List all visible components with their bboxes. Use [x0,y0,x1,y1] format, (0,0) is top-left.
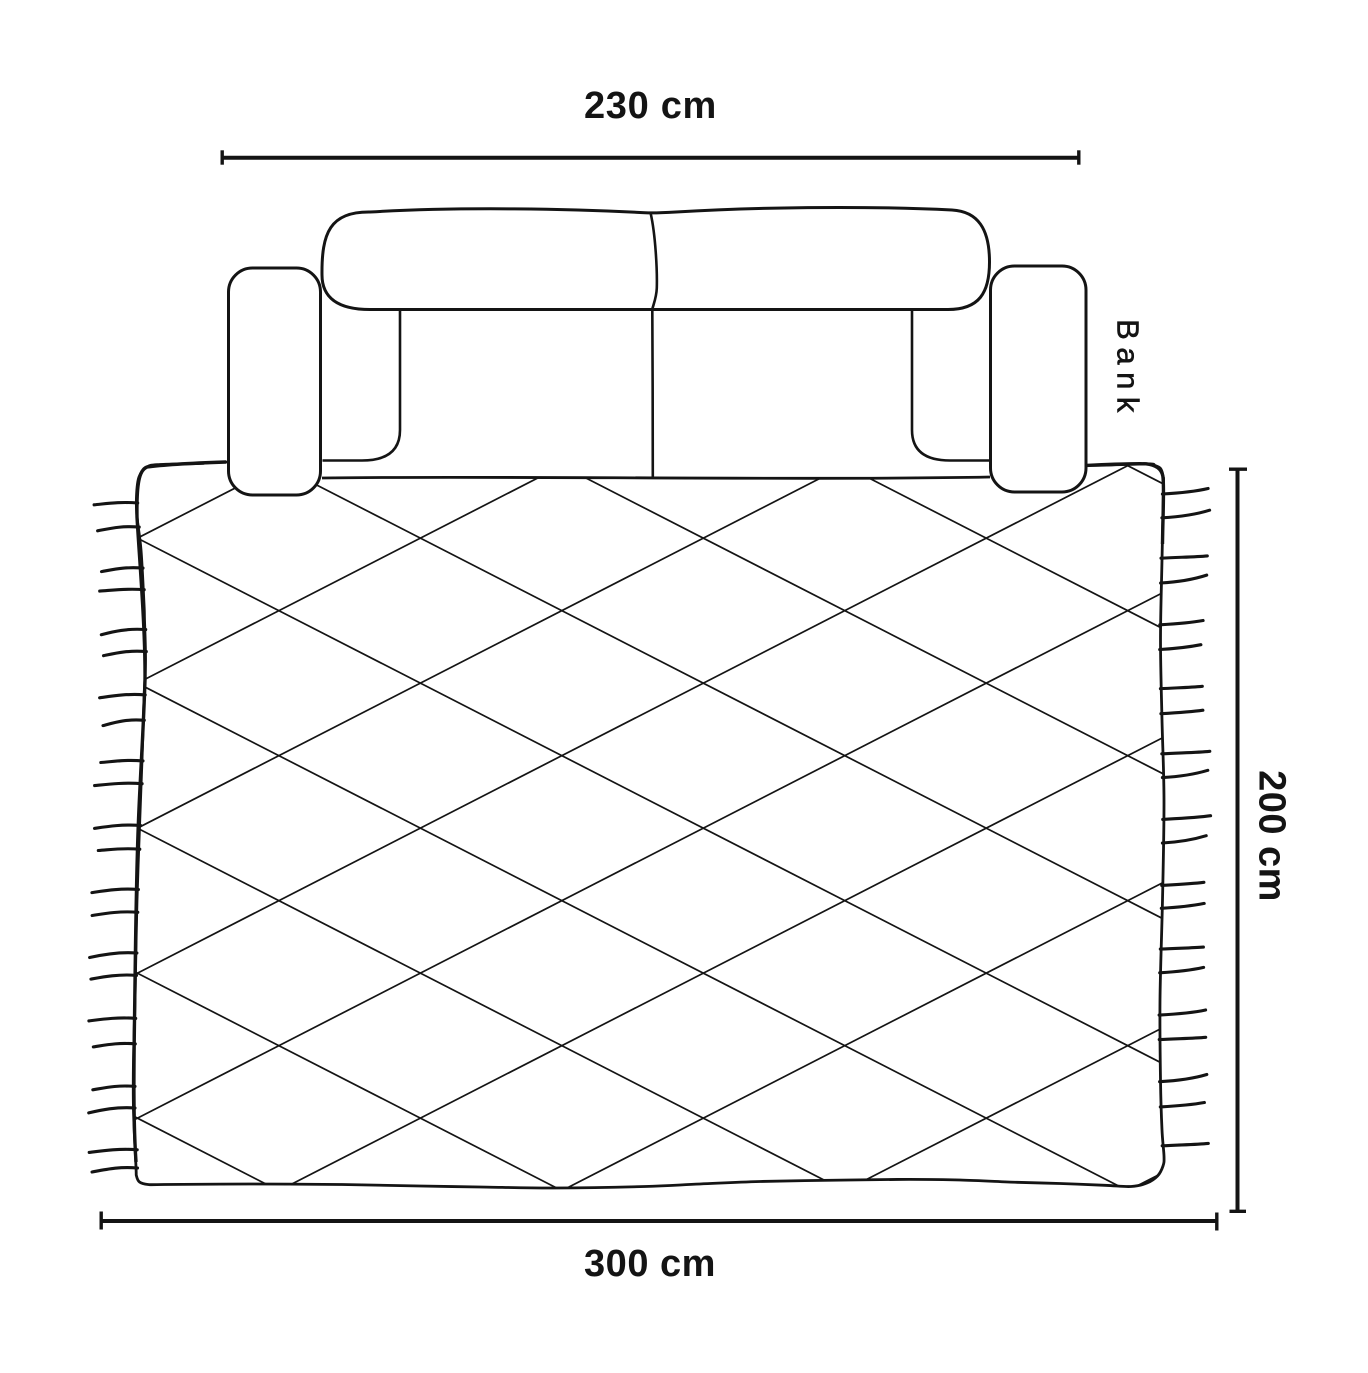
svg-text:230 cm: 230 cm [584,85,717,127]
svg-text:Bank: Bank [1111,319,1146,420]
svg-text:300 cm: 300 cm [584,1243,716,1285]
svg-text:200 cm: 200 cm [1251,770,1293,902]
